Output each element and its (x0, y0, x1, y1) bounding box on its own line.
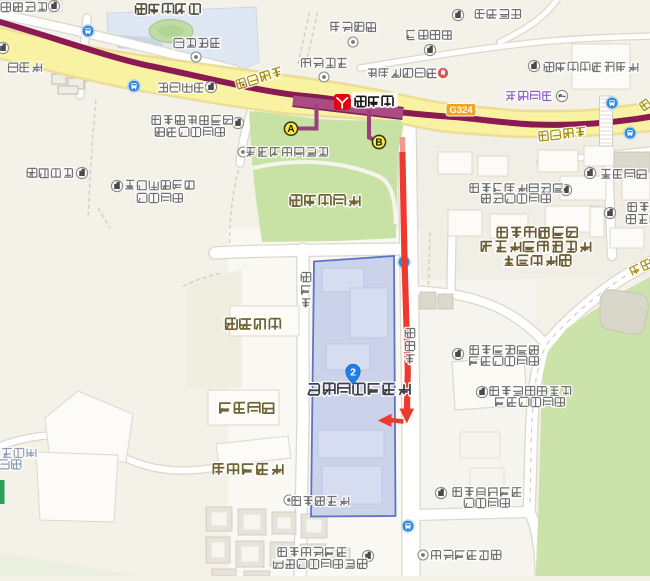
svg-text:2: 2 (350, 367, 356, 379)
svg-text:A: A (287, 124, 294, 135)
svg-text:G324: G324 (449, 105, 473, 116)
svg-text:B: B (375, 137, 382, 148)
